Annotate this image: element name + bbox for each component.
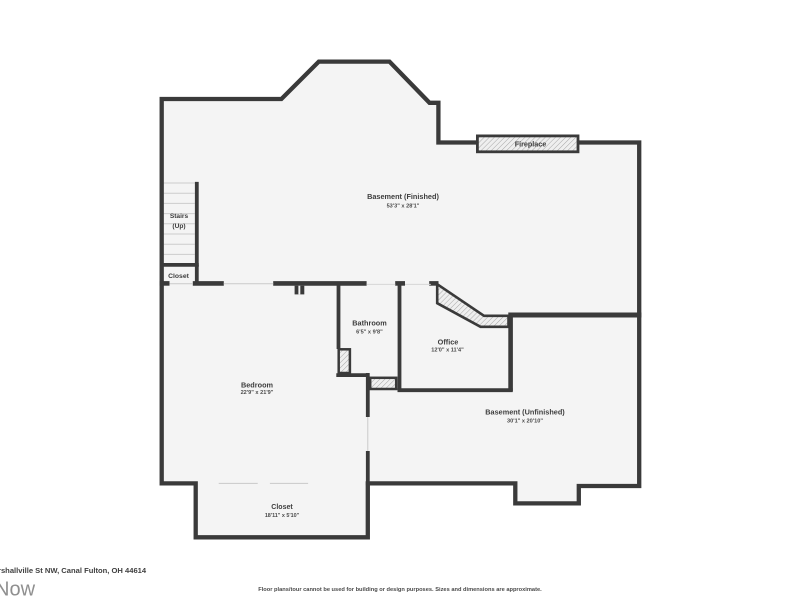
svg-text:Bedroom: Bedroom: [241, 381, 274, 390]
svg-text:Closet: Closet: [168, 273, 190, 280]
svg-text:Closet: Closet: [271, 504, 293, 511]
svg-text:Office: Office: [438, 337, 459, 346]
svg-text:Basement (Unfinished): Basement (Unfinished): [485, 408, 565, 417]
svg-text:Bathroom: Bathroom: [352, 319, 387, 328]
svg-text:Floor plans/tour cannot be use: Floor plans/tour cannot be used for buil…: [258, 587, 542, 593]
svg-text:(Up): (Up): [172, 223, 185, 230]
svg-text:rshallville St NW, Canal Fulto: rshallville St NW, Canal Fulton, OH 4461…: [0, 566, 147, 575]
svg-text:53'3" x 28'1": 53'3" x 28'1": [387, 203, 420, 209]
svg-text:Stairs: Stairs: [170, 213, 189, 220]
svg-text:30'1" x 20'10": 30'1" x 20'10": [507, 419, 543, 425]
svg-text:Fireplace: Fireplace: [515, 140, 547, 149]
svg-text:12'0" x 11'4": 12'0" x 11'4": [431, 348, 464, 354]
svg-text:Basement (Finished): Basement (Finished): [367, 192, 439, 201]
svg-text:22'9" x 21'9": 22'9" x 21'9": [241, 390, 274, 396]
svg-text:Now: Now: [0, 579, 36, 600]
svg-text:6'5" x 9'8": 6'5" x 9'8": [356, 330, 383, 336]
svg-text:18'11" x 5'10": 18'11" x 5'10": [265, 513, 300, 519]
